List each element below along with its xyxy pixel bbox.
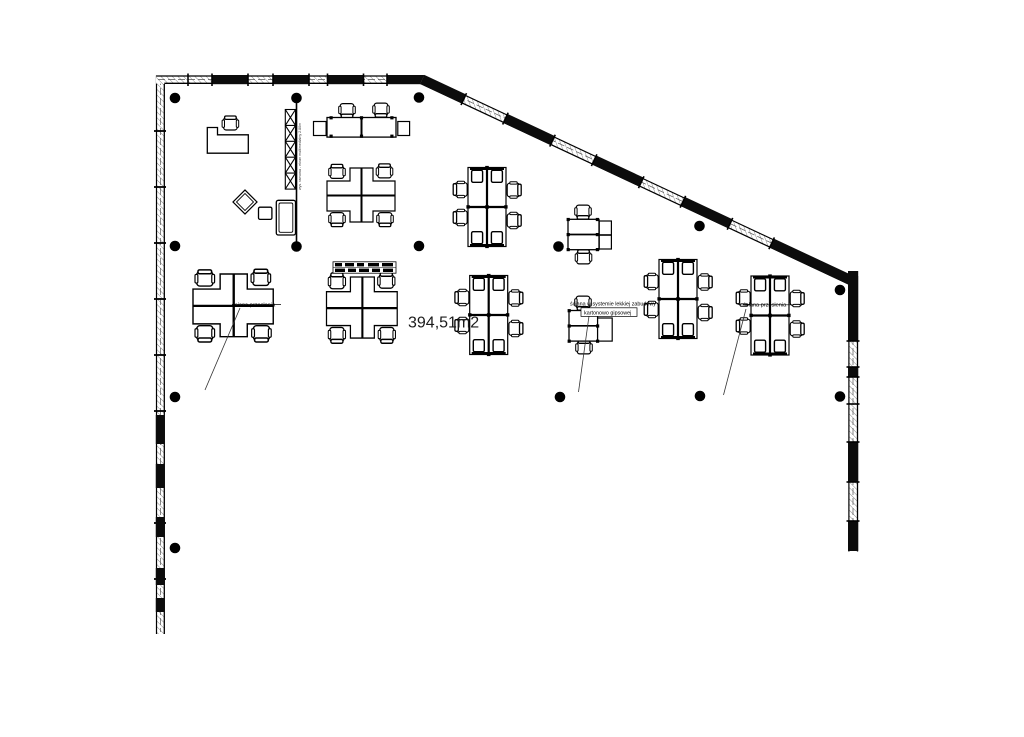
- svg-text:ściana przesłenia: ściana przesłenia: [743, 303, 787, 309]
- svg-text:ściana w systemie lekkiej zabu: ściana w systemie lekkiej zabudowy: [570, 302, 656, 308]
- svg-text:394,51m2: 394,51m2: [408, 315, 479, 332]
- svg-text:wys. ramowa - ekran multimedia: wys. ramowa - ekran multimedialny 2.80m: [298, 123, 302, 190]
- svg-text:kartonowo gipsowej: kartonowo gipsowej: [584, 310, 631, 316]
- svg-text:ściana przesłenia: ściana przesłenia: [232, 303, 276, 309]
